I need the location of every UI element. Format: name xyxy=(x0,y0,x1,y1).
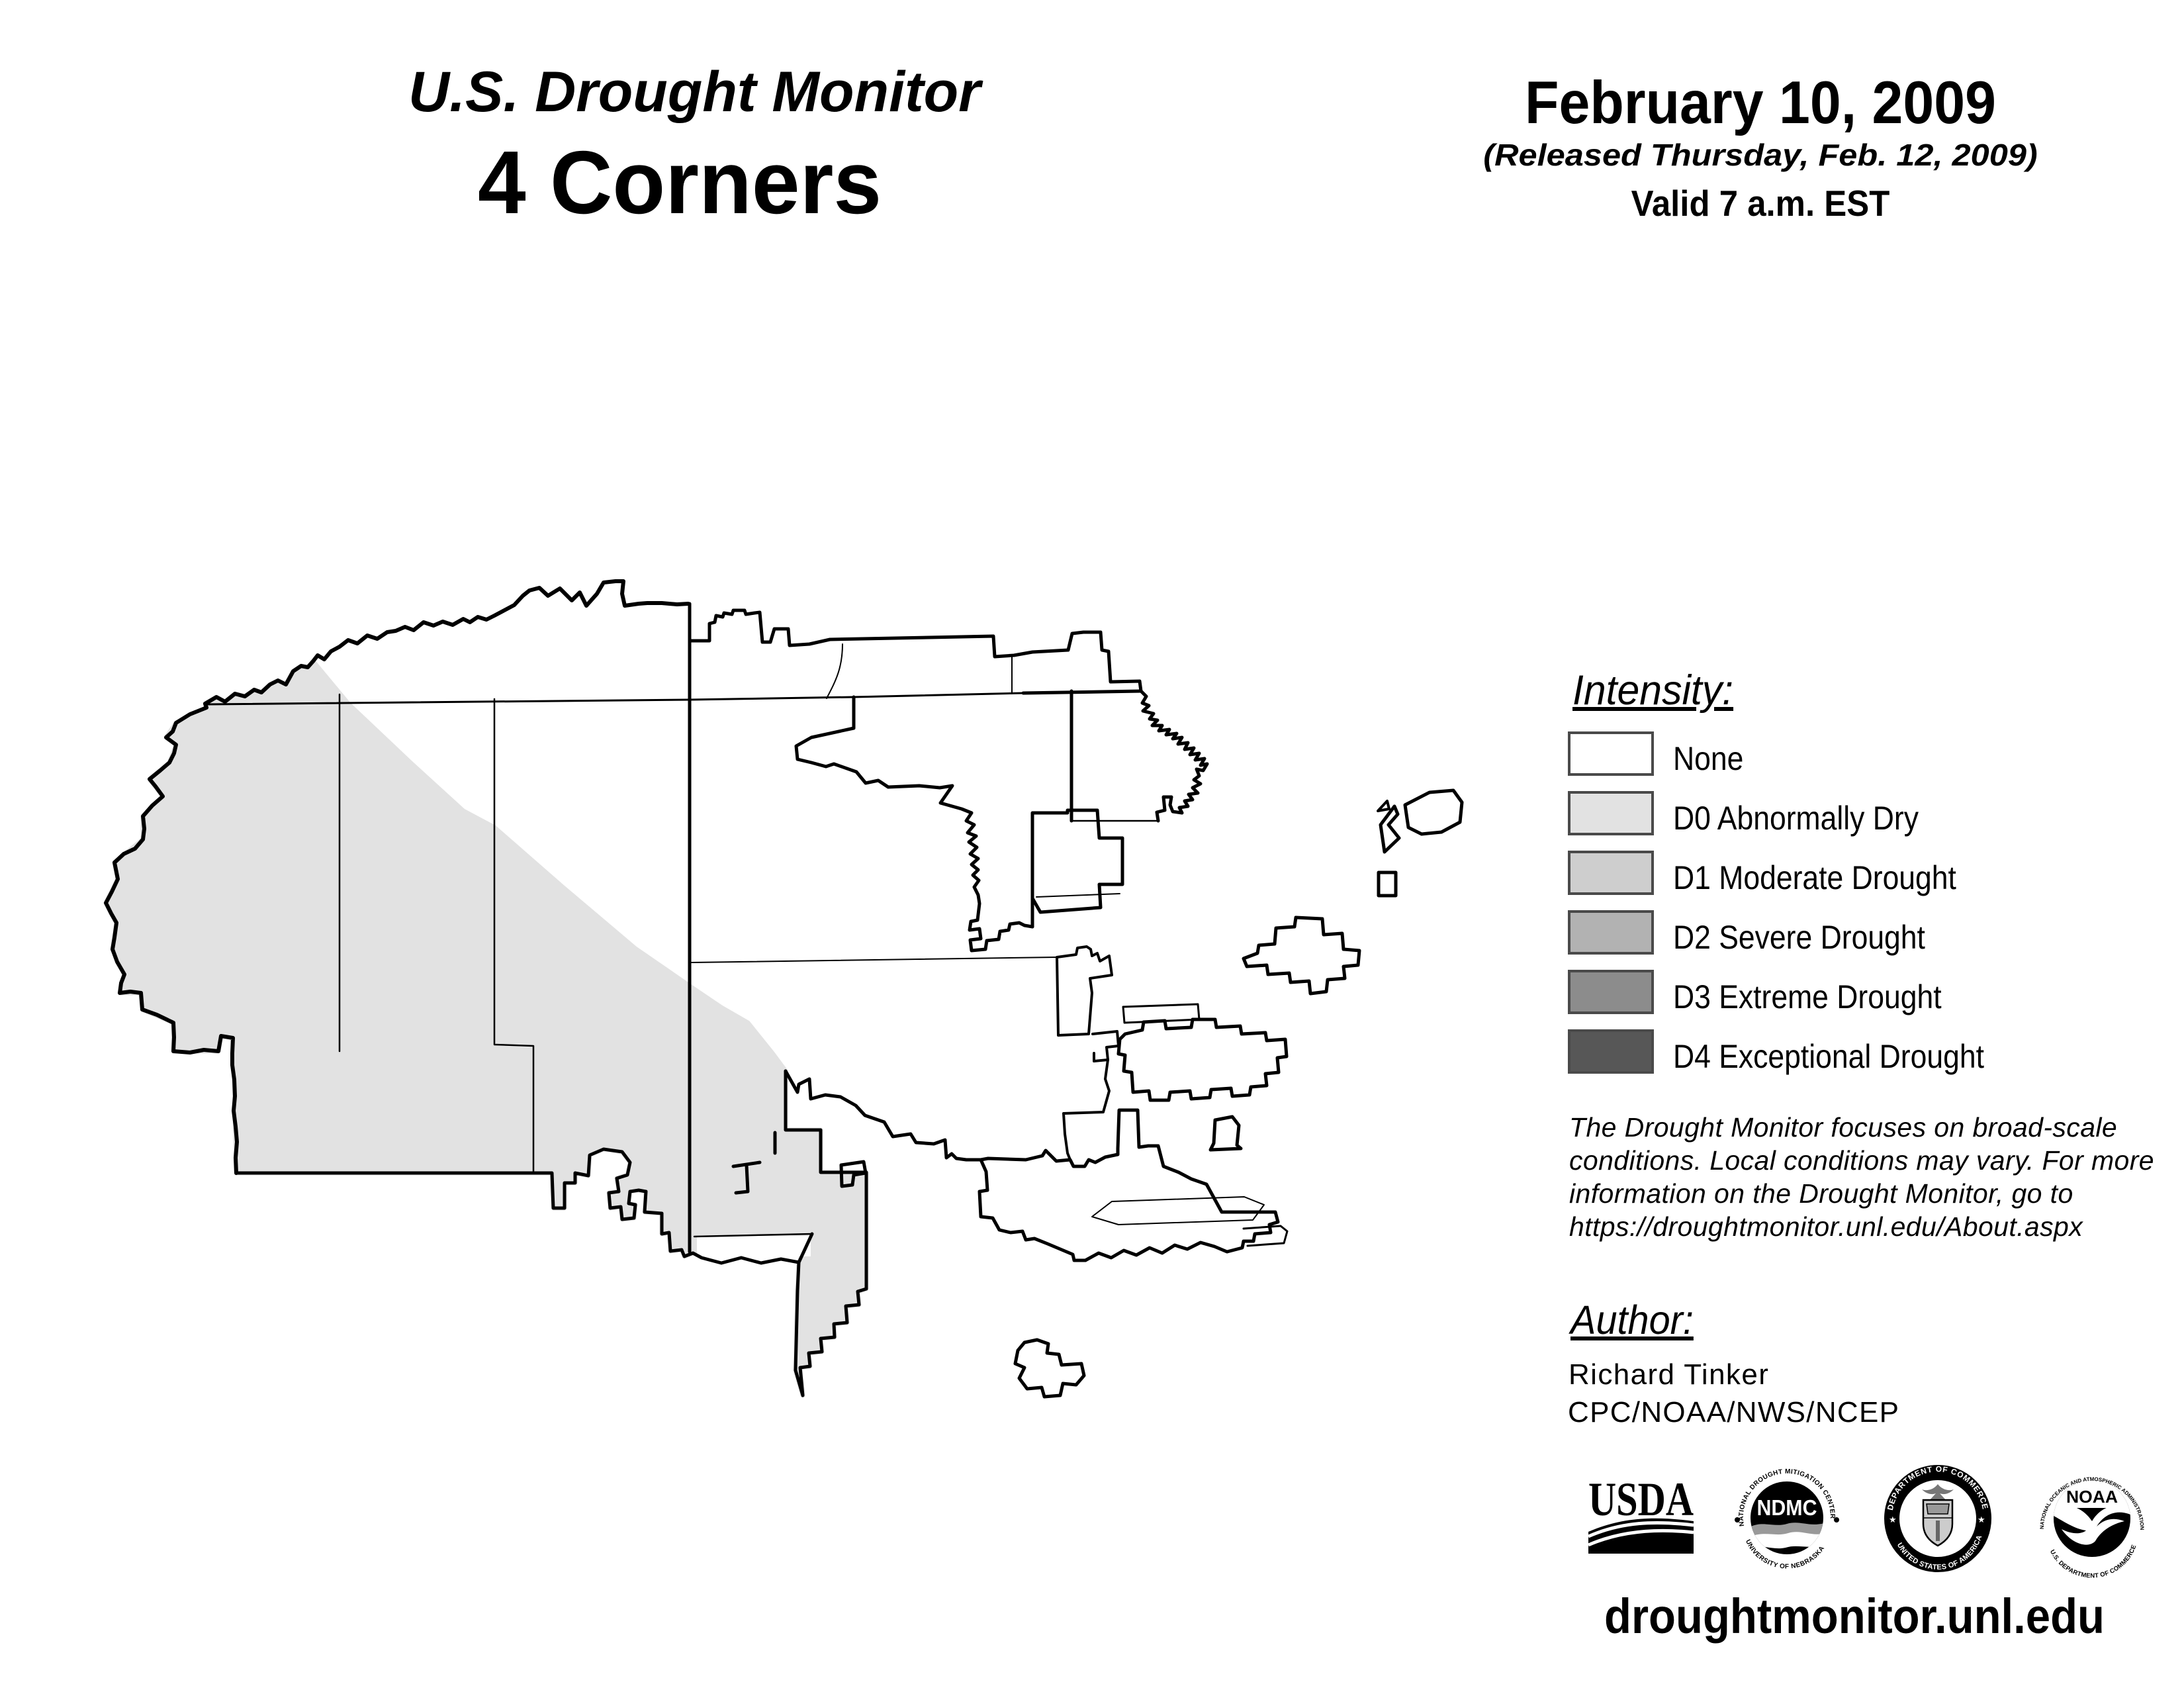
svg-text:USDA: USDA xyxy=(1588,1473,1694,1526)
svg-text:★: ★ xyxy=(1978,1515,1985,1524)
svg-text:NOAA: NOAA xyxy=(2066,1487,2118,1507)
svg-text:NDMC: NDMC xyxy=(1756,1495,1817,1520)
svg-text:★: ★ xyxy=(1889,1515,1897,1524)
